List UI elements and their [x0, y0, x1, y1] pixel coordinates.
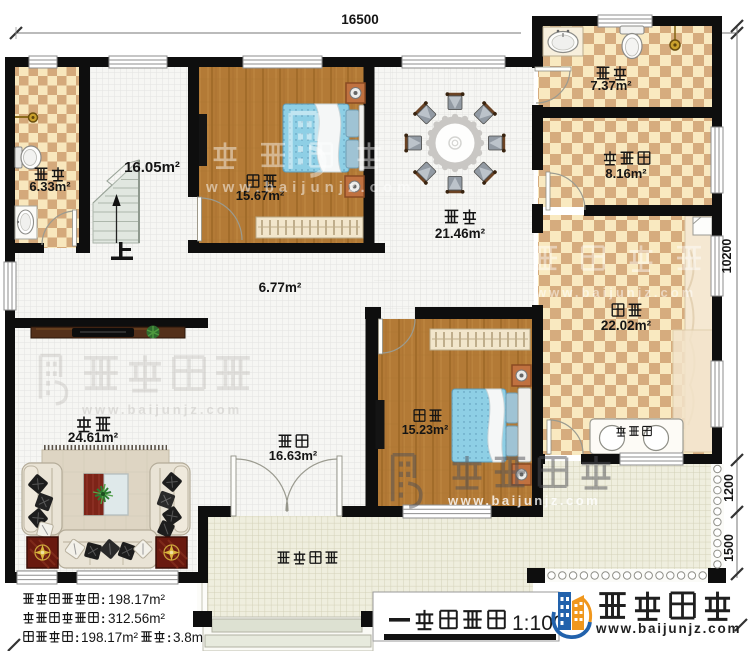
- svg-text:8.16m²: 8.16m²: [605, 166, 647, 181]
- svg-text:198.17m²: 198.17m²: [108, 592, 166, 607]
- svg-text::: :: [101, 592, 105, 607]
- svg-text:www.baijunjz.com: www.baijunjz.com: [595, 621, 741, 636]
- svg-text:7.37m²: 7.37m²: [590, 78, 632, 93]
- svg-text:22.02m²: 22.02m²: [601, 318, 652, 333]
- svg-text:www.baijunjz.com: www.baijunjz.com: [205, 179, 415, 196]
- svg-text:16.05m²: 16.05m²: [124, 159, 180, 176]
- svg-text:6.33m²: 6.33m²: [29, 179, 71, 194]
- svg-text:www.baijunjz.com: www.baijunjz.com: [81, 402, 242, 417]
- svg-text:www.baijunjz.com: www.baijunjz.com: [447, 493, 600, 508]
- svg-text:6.77m²: 6.77m²: [259, 280, 302, 295]
- svg-text:21.46m²: 21.46m²: [435, 226, 486, 241]
- svg-text:198.17m²: 198.17m²: [81, 630, 139, 645]
- svg-text:312.56m²: 312.56m²: [108, 611, 166, 626]
- svg-text:1200: 1200: [722, 474, 736, 502]
- svg-text:16.63m²: 16.63m²: [269, 448, 318, 463]
- svg-text:3.8m: 3.8m: [173, 630, 203, 645]
- svg-text:15.23m²: 15.23m²: [402, 423, 449, 437]
- svg-text::: :: [75, 630, 79, 645]
- svg-text:1500: 1500: [722, 534, 736, 562]
- svg-text:www.baijunjz.com: www.baijunjz.com: [535, 285, 696, 300]
- svg-text:24.61m²: 24.61m²: [68, 430, 119, 445]
- svg-text::: :: [101, 611, 105, 626]
- svg-text::: :: [167, 630, 171, 645]
- svg-text:10200: 10200: [720, 239, 734, 274]
- svg-text:16500: 16500: [341, 12, 379, 27]
